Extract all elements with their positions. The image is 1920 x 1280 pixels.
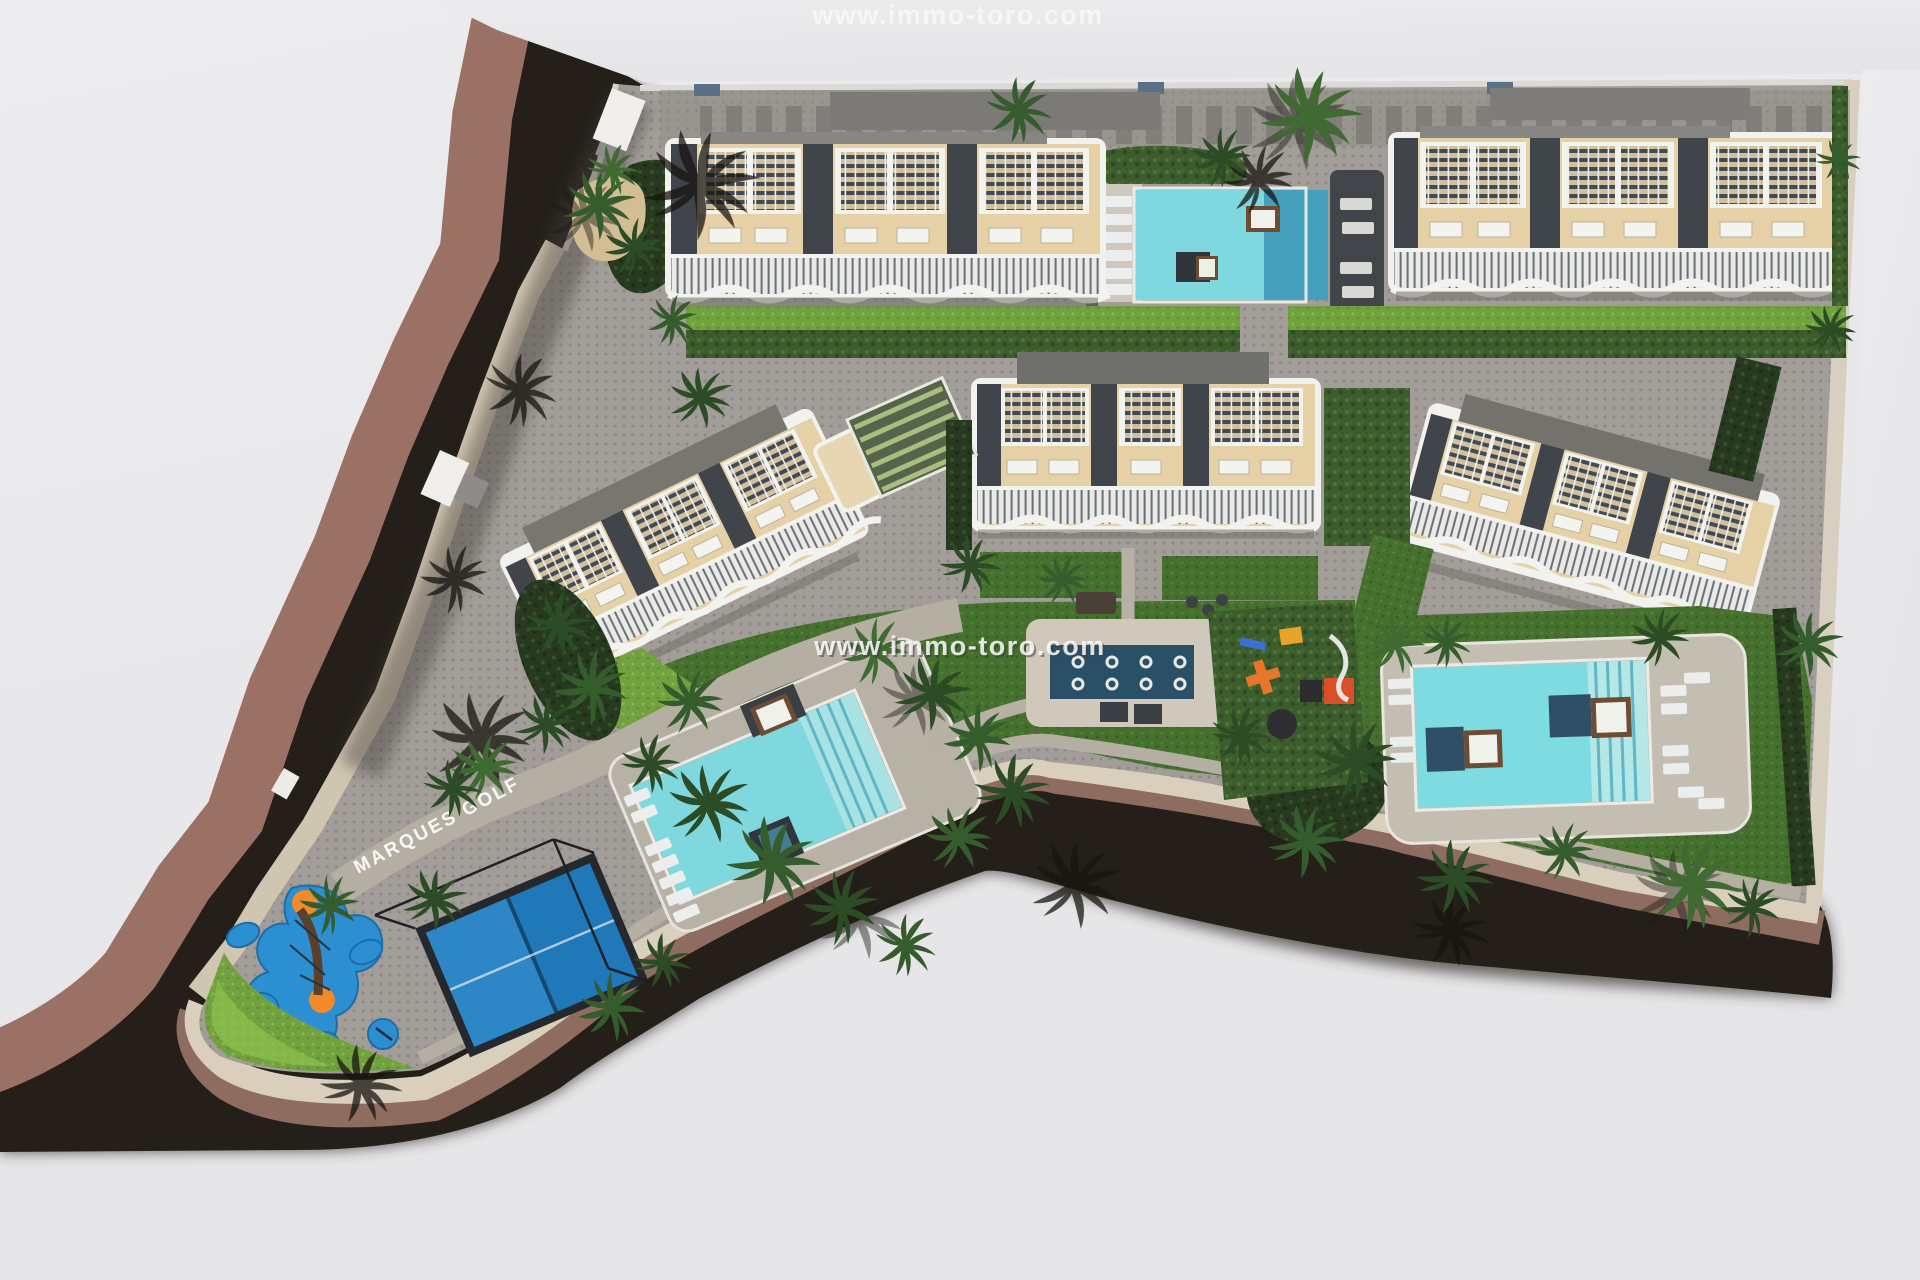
svg-text:www.immo-toro.com: www.immo-toro.com (811, 0, 1104, 30)
svg-text:www.immo-toro.com: www.immo-toro.com (813, 631, 1106, 661)
